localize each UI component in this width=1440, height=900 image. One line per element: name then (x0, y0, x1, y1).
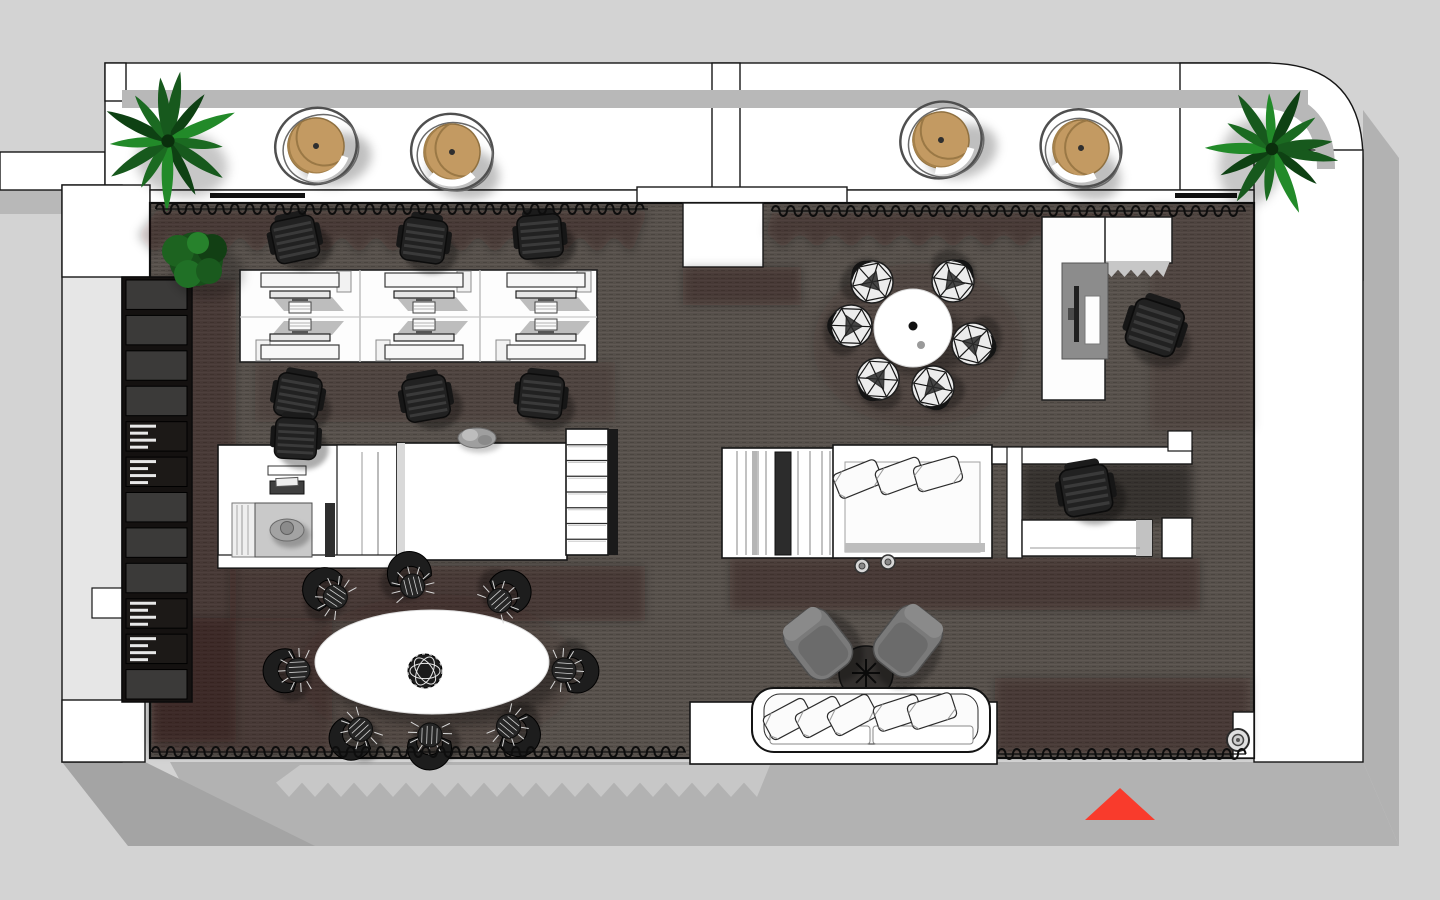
books (130, 446, 148, 449)
left-door-recess (92, 588, 122, 618)
books (130, 658, 148, 661)
books (130, 609, 148, 612)
side-table (1162, 518, 1192, 558)
folding-door (232, 503, 255, 557)
books (130, 637, 156, 640)
keyboard (1085, 296, 1100, 344)
books (130, 602, 156, 605)
books (130, 467, 148, 470)
door-pivot (1227, 729, 1249, 751)
books (130, 474, 156, 477)
books (130, 481, 148, 484)
books (130, 425, 156, 428)
wardrobe-dark-panel (775, 452, 791, 555)
focus-room (397, 443, 567, 560)
balcony-divider-pillar (712, 63, 740, 190)
monitor-stand (1068, 308, 1074, 320)
left-vestibule (62, 185, 150, 277)
books (130, 623, 148, 626)
books (130, 644, 148, 647)
stair-wall (608, 429, 618, 555)
stairs (566, 429, 608, 555)
monitor (1074, 286, 1079, 342)
books (130, 651, 156, 654)
laptop (276, 477, 298, 486)
balcony-parapet-band (122, 90, 1308, 108)
door-slot (325, 503, 335, 557)
window-wall-pier (637, 187, 847, 204)
sliding-door-leaf (210, 193, 305, 198)
right-terrace-strip (1254, 150, 1363, 762)
floor-plan-rendering (0, 0, 1440, 900)
books (130, 432, 148, 435)
nook-desk (1022, 520, 1152, 556)
wire-ball-centerpiece (408, 654, 442, 688)
bookshelf (122, 277, 192, 702)
books (130, 439, 156, 442)
bottom-left-pillar (62, 700, 145, 762)
books (130, 460, 156, 463)
books (130, 616, 156, 619)
floor-plan-svg (0, 0, 1440, 900)
window-niche (683, 203, 763, 267)
